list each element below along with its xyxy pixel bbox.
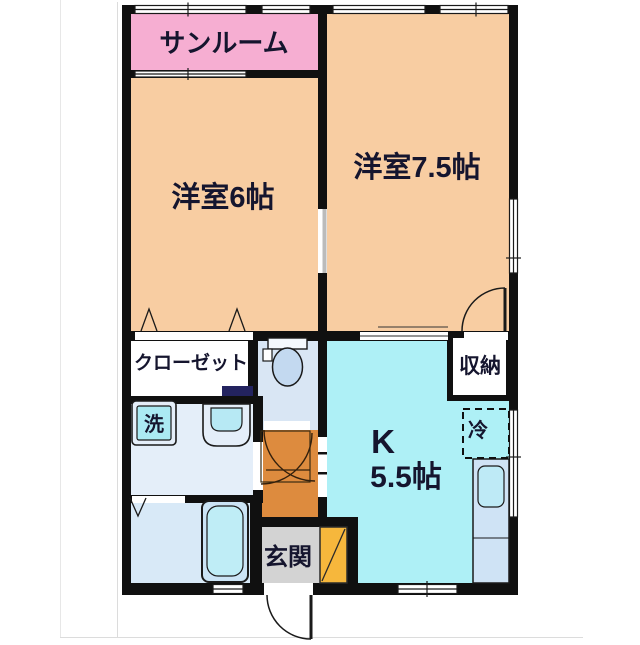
- floorplan-image: サンルーム 洋室6帖 洋室7.5帖 K 5.5帖 クローゼット 収納 玄関 洗 …: [0, 0, 640, 640]
- label-storage: 収納: [459, 354, 501, 378]
- bathroom-door-opening: [132, 496, 185, 503]
- label-entrance: 玄関: [264, 543, 312, 571]
- kitchen-counter: [473, 459, 509, 583]
- label-closet: クローゼット: [134, 351, 248, 374]
- bathtub-icon: [202, 501, 248, 582]
- kitchen-sink-icon: [478, 466, 504, 507]
- label-fridge: 冷: [468, 418, 488, 442]
- window: [333, 6, 425, 14]
- label-washer: 洗: [144, 413, 164, 436]
- bedroom75-door-opening: [464, 332, 508, 340]
- label-kitchen-k: K: [371, 423, 395, 460]
- shoe-cabinet: [320, 527, 347, 583]
- entrance-door-opening: [264, 583, 313, 595]
- hall-kitchen-door-opening: [318, 437, 327, 497]
- closet-door-opening: [135, 332, 253, 340]
- label-sunroom: サンルーム: [159, 28, 288, 58]
- window: [213, 585, 243, 594]
- accent-wall: [222, 386, 253, 396]
- window: [262, 6, 310, 14]
- label-kitchen-size: 5.5帖: [370, 461, 442, 494]
- label-bedroom75: 洋室7.5帖: [353, 150, 480, 184]
- sink-icon: [203, 404, 250, 446]
- room-hallway: [255, 430, 318, 522]
- floorplan-svg: サンルーム 洋室6帖 洋室7.5帖 K 5.5帖 クローゼット 収納 玄関 洗 …: [0, 0, 640, 640]
- label-bedroom6: 洋室6帖: [171, 180, 274, 214]
- toilet-door-opening: [264, 421, 310, 430]
